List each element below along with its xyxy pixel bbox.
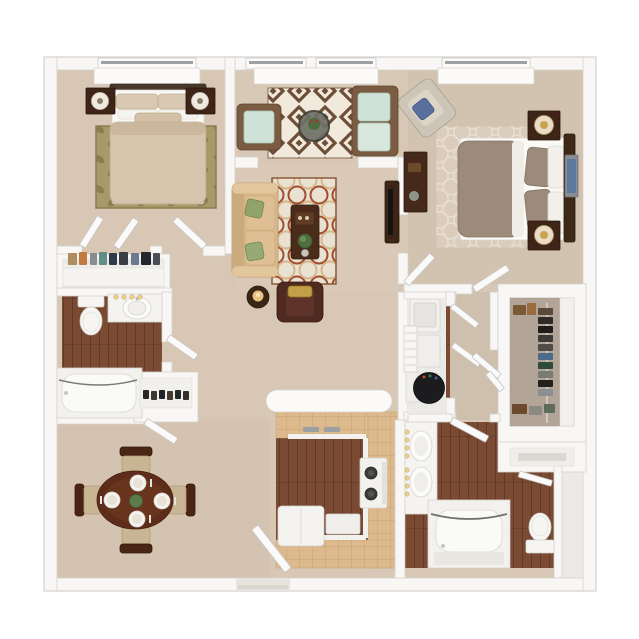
master-bath-sink-basin: [414, 436, 428, 456]
closet-item: [513, 305, 526, 315]
closet1-shelf: [63, 268, 164, 286]
dining-chair-west-back: [75, 484, 84, 516]
closet1-garment: [68, 253, 77, 265]
hanging-garment: [538, 371, 553, 378]
wall-bath2-top-a: [408, 414, 452, 422]
table-lamp-finial: [540, 121, 548, 129]
cabinet-edge-top: [288, 434, 366, 439]
stove-control-panel: [382, 462, 387, 504]
vanity2-light: [405, 492, 409, 496]
vanity1-light: [130, 295, 135, 300]
coffee-table-tray: [295, 212, 314, 225]
window-bed2-glass: [101, 61, 193, 64]
toilet1-tank: [78, 296, 104, 307]
toilet2-tank: [526, 540, 554, 553]
shoe: [175, 390, 181, 399]
bed2-pillow: [116, 94, 158, 109]
sofa-pillow-green: [244, 199, 264, 219]
sunroom-plant: [308, 118, 320, 130]
place-setting-inner: [157, 496, 167, 506]
vanity1-light: [114, 295, 119, 300]
armchair-gold-pillow: [288, 286, 312, 297]
bathroom1-sink-basin: [128, 301, 146, 315]
vanity2-light: [405, 484, 409, 488]
wall-sunroom-south-b: [358, 157, 398, 168]
sofa-pillow-green: [245, 242, 265, 262]
wall-bottom: [44, 578, 596, 591]
silverware: [149, 515, 151, 523]
water-heater-wire: [435, 377, 438, 380]
water-heater: [414, 373, 445, 404]
window-master-glass: [445, 61, 527, 64]
coffee-table-plant-highlight: [300, 236, 306, 242]
shoe: [167, 391, 173, 400]
closet-item: [527, 303, 536, 315]
hanging-garment: [538, 317, 553, 324]
shape-layer: [0, 0, 639, 639]
dining-chair-south-cushion: [122, 527, 150, 544]
wall-art-canvas: [567, 159, 576, 193]
vanity2-light: [405, 430, 409, 434]
sunroom-chair-cushion: [244, 111, 274, 143]
walkin-shelf-right: [560, 298, 574, 426]
closet-item: [512, 404, 527, 414]
sunroom-loveseat-cushion: [358, 93, 390, 121]
silverware: [174, 497, 176, 505]
vanity2-light: [405, 476, 409, 480]
tray-candle: [298, 216, 302, 220]
hanging-garment: [538, 326, 553, 333]
closet-item: [544, 404, 555, 413]
place-setting-inner: [132, 514, 142, 524]
bathtub2-faucet: [441, 544, 445, 548]
table-lamp-finial: [197, 98, 203, 104]
bed2-duvet-fold: [110, 122, 206, 135]
dining-chair-north-cushion: [122, 456, 150, 473]
linen-shelf: [518, 453, 566, 461]
wall-bath2-east: [554, 466, 562, 578]
master-bed-duvet: [458, 141, 520, 237]
coffee-table-bowl: [302, 250, 309, 257]
dining-chair-east-back: [186, 484, 195, 516]
window-sill-bed2: [94, 68, 200, 84]
bathtub2-tile: [434, 552, 504, 565]
window-sill-sunroom: [254, 68, 378, 84]
closet1-garment: [79, 252, 87, 265]
water-heater-wire: [429, 375, 432, 378]
master-bath-nook-floor: [562, 468, 583, 578]
master-desk-book: [408, 163, 421, 172]
floor-plan-image: [0, 0, 639, 639]
master-bath-sink-basin: [414, 472, 428, 492]
counter-vent-tray: [324, 427, 340, 432]
window-sun2-glass: [319, 61, 373, 64]
wall-kitchen-east: [395, 420, 405, 578]
shoe: [151, 391, 157, 400]
window-sill-master: [438, 68, 534, 84]
wall-bath1-east-a: [162, 292, 172, 342]
stove-burner-center: [368, 491, 374, 497]
shoe: [159, 390, 165, 399]
wall-left: [44, 57, 57, 591]
shoe: [183, 391, 189, 400]
pass-through-counter: [266, 390, 392, 412]
wall-bath2-top-b: [490, 414, 500, 422]
table-lamp-finial: [97, 98, 103, 104]
candle-flame: [256, 293, 260, 297]
silverware: [150, 479, 152, 487]
dishwasher: [326, 514, 360, 534]
closet1-garment: [90, 253, 97, 265]
water-heater-wire: [423, 376, 426, 379]
vanity2-light: [405, 454, 409, 458]
closet1-garment: [141, 252, 151, 265]
master-desk: [404, 152, 427, 212]
sofa-armrest: [232, 266, 278, 277]
shoe: [143, 390, 149, 399]
hanging-garment: [538, 380, 553, 387]
table-lamp-finial: [540, 231, 548, 239]
closet1-garment: [153, 253, 160, 265]
master-bed-sheet-fold: [512, 141, 524, 237]
silverware: [100, 496, 102, 504]
sunroom-loveseat-cushion: [358, 123, 390, 151]
place-setting-inner: [107, 495, 117, 505]
vanity1-light: [138, 295, 143, 300]
bathtub1-basin: [62, 374, 136, 412]
vanity2-light: [405, 438, 409, 442]
closet1-garment: [131, 253, 139, 265]
washer-lid: [414, 303, 436, 327]
sunroom-plant-flower: [310, 121, 313, 124]
floor-plan-svg: [0, 0, 639, 639]
master-white-pillow: [548, 146, 564, 188]
vanity2-light: [405, 468, 409, 472]
closet1-garment: [109, 253, 117, 265]
vanity1-light: [122, 295, 127, 300]
sofa-armrest: [232, 183, 278, 194]
dining-chair-north-back: [120, 447, 152, 456]
tray-candle: [305, 216, 309, 220]
wall-hall-east: [490, 292, 498, 350]
closet-item: [529, 406, 542, 415]
dining-chair-south-back: [120, 544, 152, 553]
counter-vent-tray: [303, 427, 319, 432]
hanging-garment: [538, 389, 553, 396]
hanging-garment: [538, 344, 553, 351]
hanging-garment: [538, 308, 553, 315]
wall-sunroom-south-a: [235, 157, 258, 168]
master-desk-plant: [409, 191, 419, 201]
window-sun1-glass: [249, 61, 303, 64]
hanging-garment: [538, 335, 553, 342]
hanging-garment: [538, 362, 553, 369]
stove-burner-center: [368, 470, 374, 476]
vanity2-light: [405, 446, 409, 450]
sofa-back: [232, 190, 244, 270]
closet1-garment: [99, 252, 107, 265]
bathtub1-faucet: [64, 391, 68, 395]
dining-centerpiece-plant: [130, 495, 143, 508]
entry-threshold: [238, 585, 288, 589]
tv-screen: [388, 189, 393, 235]
closet1-garment: [119, 252, 128, 265]
sunroom-plant-flower: [316, 120, 319, 123]
place-setting-inner: [133, 478, 143, 488]
wall-bed2-south-c: [203, 246, 225, 256]
hanging-garment: [538, 353, 553, 360]
